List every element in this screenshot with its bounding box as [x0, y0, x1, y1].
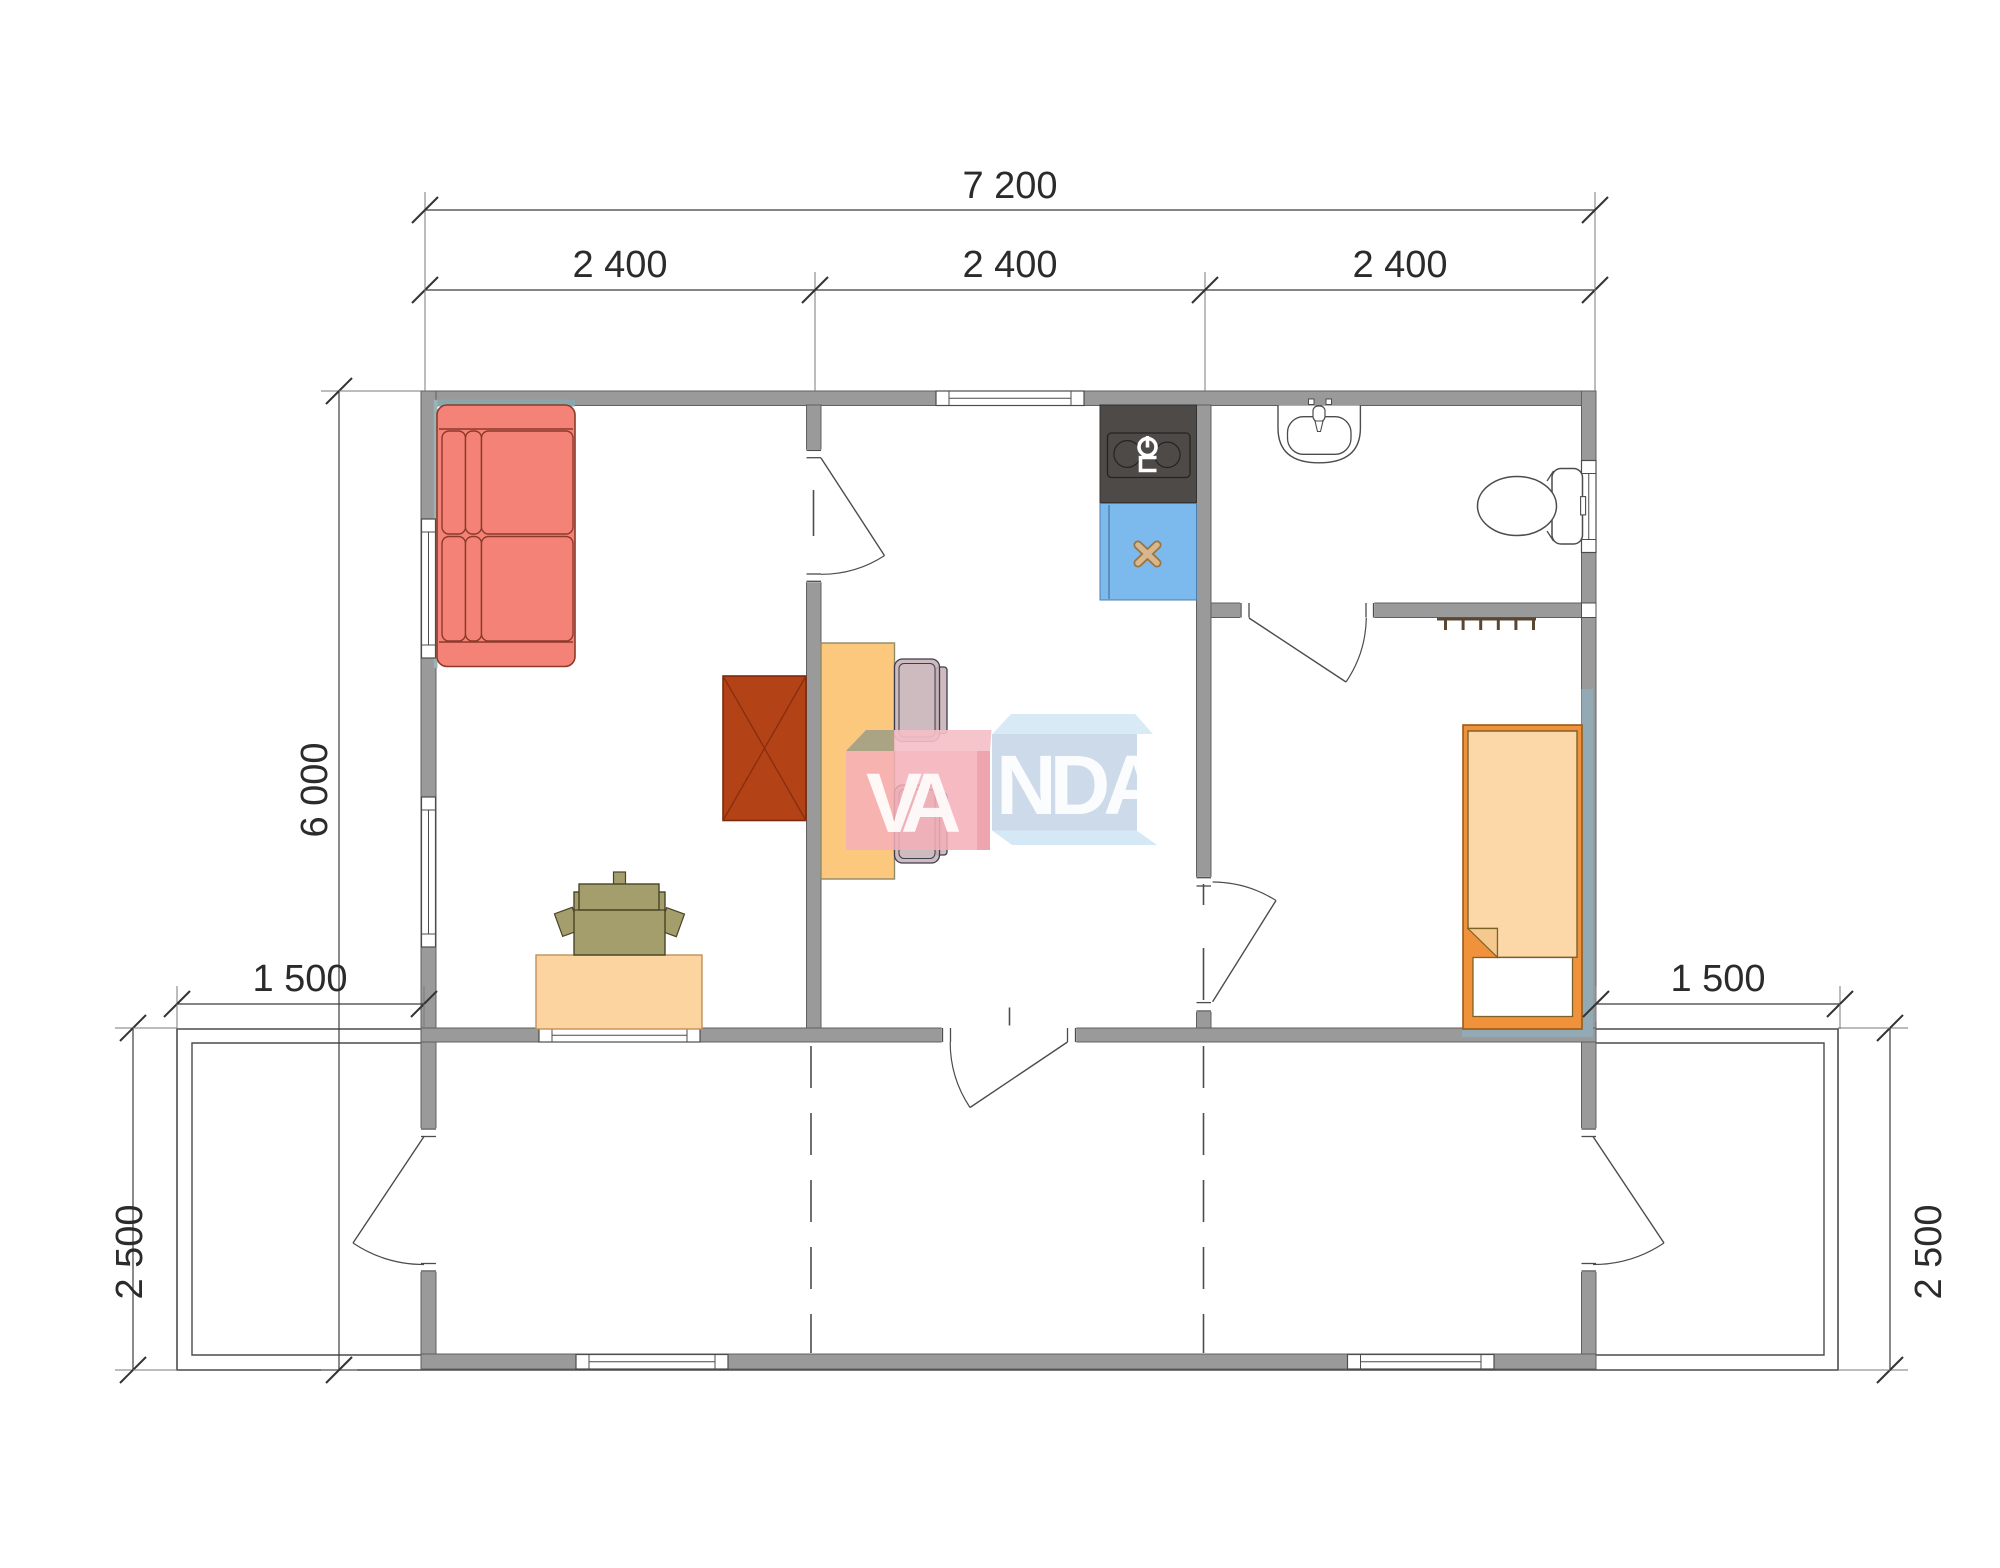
svg-text:2 500: 2 500 [109, 1204, 151, 1299]
svg-text:VA: VA [866, 756, 960, 850]
svg-text:6 000: 6 000 [294, 742, 336, 837]
svg-text:1 500: 1 500 [252, 958, 347, 1000]
svg-text:2 400: 2 400 [572, 244, 667, 286]
svg-text:2 400: 2 400 [962, 244, 1057, 286]
svg-text:NDA: NDA [996, 738, 1162, 832]
svg-text:1 500: 1 500 [1670, 958, 1765, 1000]
svg-text:2 400: 2 400 [1352, 244, 1447, 286]
svg-text:2 500: 2 500 [1908, 1204, 1950, 1299]
svg-text:7 200: 7 200 [962, 165, 1057, 207]
